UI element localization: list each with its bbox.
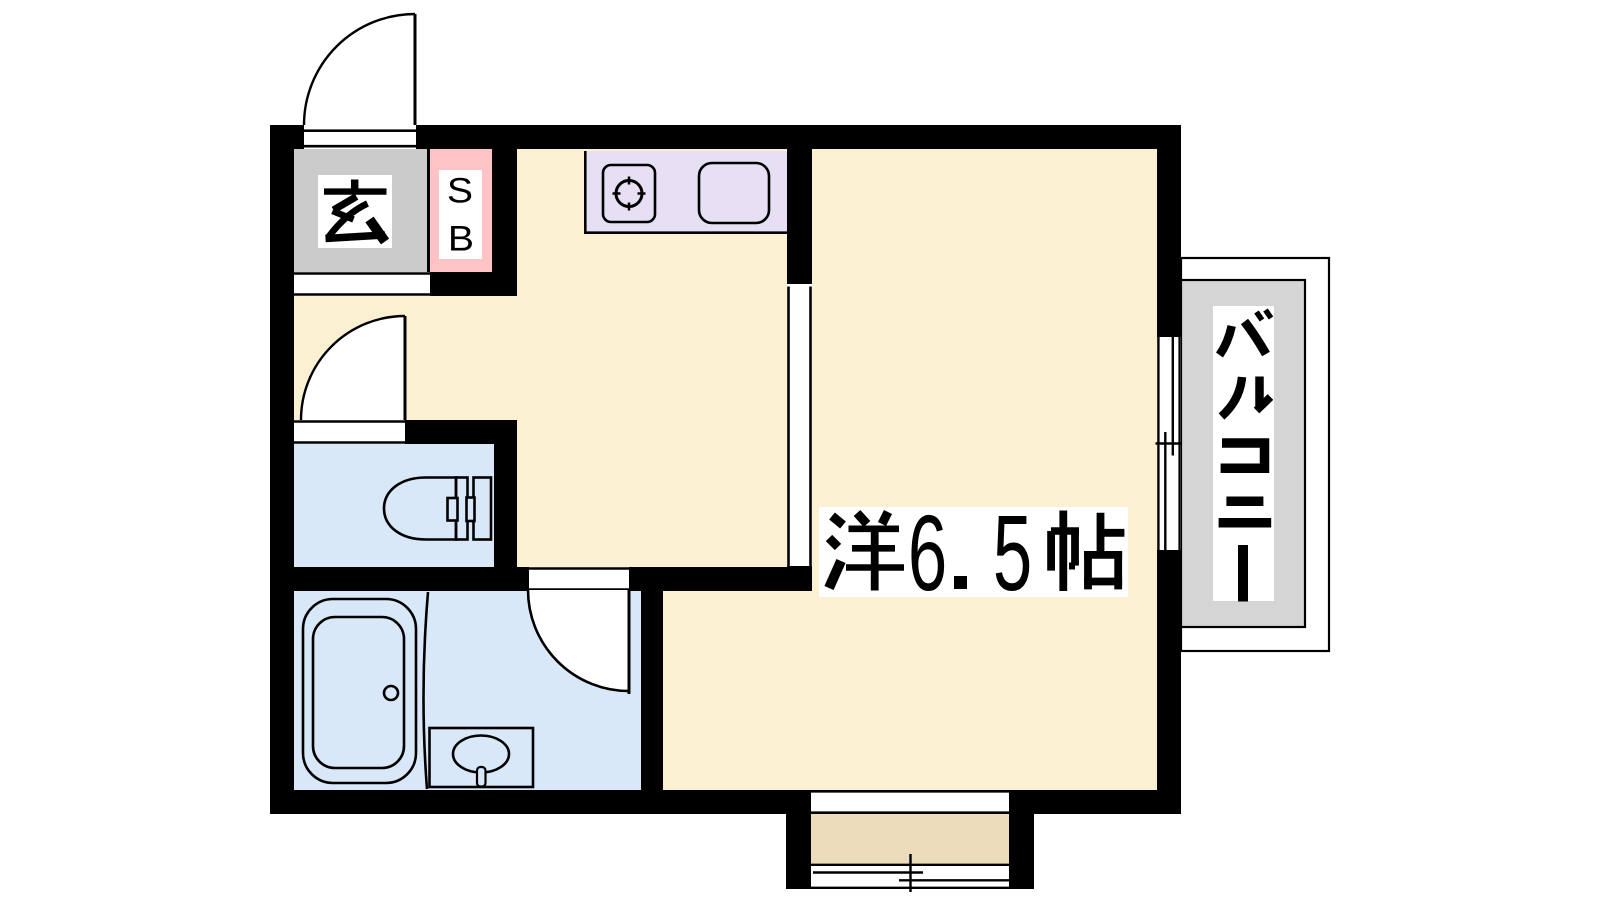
svg-text:6: 6 — [908, 493, 947, 614]
svg-text:S: S — [447, 170, 473, 210]
svg-text:B: B — [448, 218, 474, 258]
svg-text:5: 5 — [993, 493, 1032, 614]
